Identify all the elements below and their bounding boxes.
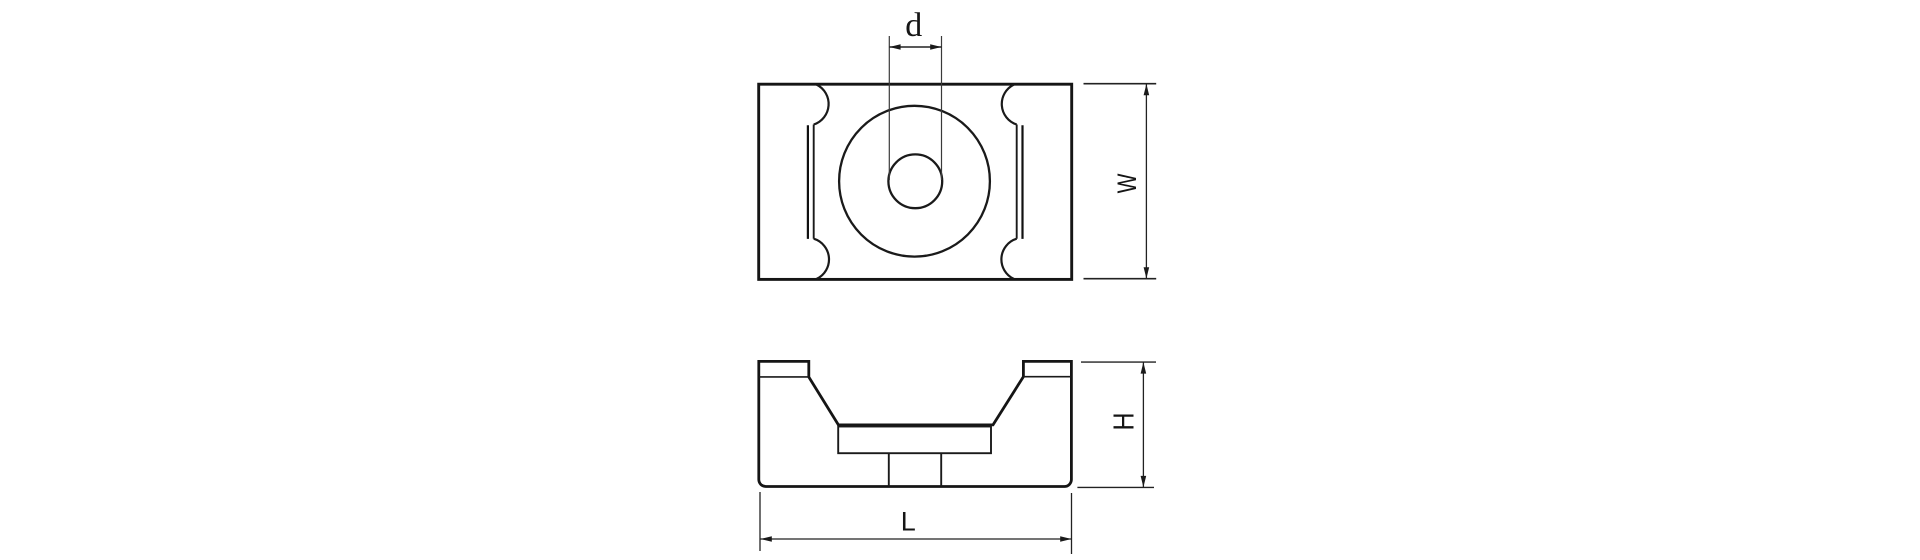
svg-text:d: d: [905, 7, 922, 44]
svg-text:L: L: [901, 507, 916, 537]
svg-text:W: W: [1112, 173, 1142, 193]
svg-text:H: H: [1108, 412, 1140, 430]
